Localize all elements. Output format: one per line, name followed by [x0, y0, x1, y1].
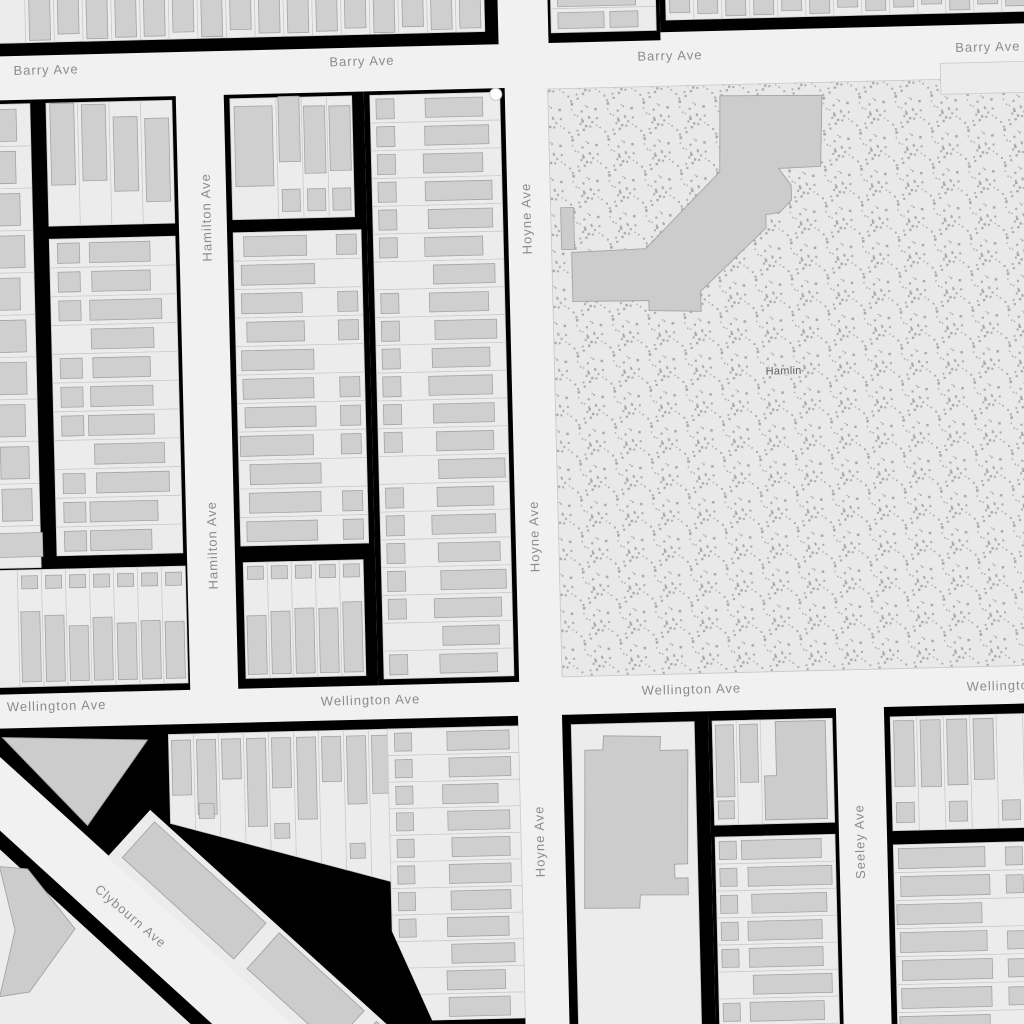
building — [86, 0, 108, 39]
building — [243, 235, 306, 257]
building — [93, 617, 114, 680]
building — [1009, 987, 1024, 1005]
building — [60, 358, 82, 379]
building — [396, 813, 413, 831]
building — [384, 432, 402, 452]
building — [221, 739, 241, 779]
map-dot — [490, 88, 502, 100]
street-label: Wellington Ave — [321, 691, 421, 708]
building — [894, 720, 916, 786]
building — [241, 292, 302, 313]
building — [240, 435, 313, 457]
building — [338, 319, 358, 339]
building — [88, 414, 154, 436]
building — [425, 97, 483, 117]
building — [451, 890, 511, 910]
building — [379, 210, 397, 230]
building — [448, 810, 510, 831]
building — [946, 719, 968, 785]
building — [90, 529, 152, 550]
building — [399, 919, 416, 937]
parcel — [0, 570, 20, 690]
building — [750, 1001, 825, 1022]
building — [973, 718, 994, 779]
building — [721, 922, 738, 940]
building — [558, 12, 604, 29]
building — [437, 486, 494, 506]
building — [64, 531, 86, 552]
building — [61, 387, 83, 408]
building — [28, 0, 50, 40]
building — [377, 126, 395, 146]
building — [897, 903, 982, 925]
parcel — [0, 0, 26, 43]
building — [229, 0, 251, 30]
building — [333, 188, 352, 210]
building — [50, 103, 76, 185]
building — [241, 349, 314, 371]
building — [295, 608, 316, 673]
building — [893, 0, 914, 7]
building — [395, 759, 412, 777]
building — [401, 0, 423, 27]
building — [247, 615, 267, 674]
rotated-map-layer: Barry AveBarry AveBarry AveBarry AveHami… — [0, 0, 1024, 1024]
building — [315, 0, 337, 31]
building — [93, 356, 151, 377]
building — [748, 920, 823, 941]
building — [441, 569, 507, 590]
building — [172, 0, 194, 32]
building — [1007, 931, 1024, 949]
building — [781, 0, 802, 11]
building — [452, 943, 516, 964]
building — [977, 0, 998, 4]
building — [920, 720, 942, 787]
building — [319, 608, 340, 673]
building — [921, 0, 942, 4]
building — [383, 377, 401, 397]
building — [741, 839, 821, 860]
building — [720, 868, 737, 886]
building — [342, 490, 362, 510]
building — [896, 802, 914, 822]
building — [438, 458, 505, 479]
street-label: Barry Ave — [329, 53, 394, 70]
building — [837, 0, 858, 7]
street-label: Wellington Ave — [966, 677, 1024, 694]
building — [697, 0, 718, 14]
building — [720, 895, 737, 913]
street-label: Hoyne Ave — [531, 805, 548, 877]
building — [447, 730, 510, 751]
building — [449, 996, 511, 1016]
building — [249, 491, 321, 513]
building — [250, 463, 321, 485]
parcel — [940, 59, 1024, 94]
building — [447, 970, 506, 990]
building — [64, 502, 86, 523]
building — [200, 0, 222, 37]
building — [89, 241, 150, 262]
building — [336, 234, 356, 254]
building — [435, 319, 497, 340]
building — [900, 931, 987, 953]
building — [373, 0, 395, 33]
building — [433, 403, 494, 423]
building — [432, 347, 490, 367]
building — [143, 0, 165, 36]
building — [58, 272, 80, 293]
building — [271, 566, 287, 579]
building — [429, 375, 493, 396]
building — [296, 737, 317, 819]
building — [739, 724, 758, 782]
building — [0, 278, 21, 311]
building — [381, 293, 399, 313]
building — [949, 0, 970, 10]
building — [0, 193, 21, 226]
building — [423, 153, 483, 173]
building — [247, 321, 305, 342]
building — [669, 0, 690, 13]
building — [199, 803, 214, 818]
building — [949, 801, 967, 821]
building — [81, 104, 107, 181]
building — [247, 520, 318, 542]
street-label: Hamilton Ave — [204, 501, 221, 590]
building — [440, 653, 498, 673]
building — [114, 0, 136, 37]
building — [752, 892, 827, 913]
building — [329, 106, 352, 171]
building — [1008, 959, 1024, 977]
building — [723, 1003, 740, 1021]
building — [425, 125, 489, 146]
building — [303, 106, 326, 174]
building — [338, 291, 358, 311]
building — [141, 620, 161, 679]
building — [718, 801, 734, 819]
building — [350, 843, 365, 858]
street-label: Barry Ave — [955, 38, 1020, 55]
map-viewport[interactable]: Barry AveBarry AveBarry AveBarry AveHami… — [0, 0, 1024, 1024]
building — [59, 300, 81, 321]
building — [382, 349, 400, 369]
street-label: Seeley Ave — [851, 804, 868, 879]
street-label: Hamilton Ave — [198, 173, 215, 262]
building — [442, 783, 498, 803]
building — [425, 236, 483, 256]
building — [45, 615, 66, 681]
building — [69, 625, 89, 680]
building — [340, 376, 360, 396]
map-canvas[interactable]: Barry AveBarry AveBarry AveBarry AveHami… — [0, 0, 1024, 1024]
building — [377, 154, 395, 174]
building — [94, 442, 164, 464]
building — [319, 564, 335, 577]
building — [396, 786, 413, 804]
building — [398, 892, 415, 910]
building — [2, 489, 33, 522]
building — [809, 0, 830, 14]
building — [610, 11, 638, 28]
building — [386, 516, 404, 536]
building — [753, 0, 774, 15]
building — [725, 0, 746, 16]
building — [719, 841, 736, 859]
building — [902, 986, 993, 1008]
building — [69, 574, 85, 587]
building — [45, 575, 61, 588]
building — [459, 0, 481, 28]
building — [0, 236, 25, 269]
building — [429, 292, 488, 312]
building — [385, 488, 403, 508]
building — [436, 430, 494, 450]
building — [389, 654, 407, 674]
building — [394, 733, 411, 751]
building — [287, 0, 309, 33]
building — [113, 116, 139, 191]
building — [378, 182, 396, 202]
building — [340, 405, 360, 425]
building — [171, 740, 191, 795]
building — [117, 623, 137, 680]
building — [715, 725, 735, 797]
building — [447, 916, 509, 936]
building — [117, 573, 133, 586]
building — [165, 572, 181, 585]
building — [341, 433, 361, 453]
building — [343, 519, 363, 539]
building — [0, 362, 27, 395]
building — [271, 737, 291, 787]
building — [321, 736, 341, 781]
building — [246, 738, 267, 826]
building — [141, 573, 157, 586]
building — [1002, 800, 1020, 820]
building — [91, 328, 154, 350]
building — [57, 243, 79, 264]
street-label: Wellington Ave — [641, 680, 741, 697]
park-label: Hamlin — [765, 365, 801, 378]
building — [397, 839, 414, 857]
building — [90, 500, 158, 522]
building — [901, 874, 991, 896]
building — [0, 151, 16, 184]
building — [57, 0, 79, 34]
building — [425, 180, 492, 201]
building — [343, 564, 359, 577]
building — [388, 599, 406, 619]
building — [258, 0, 280, 33]
building — [247, 566, 263, 579]
building — [748, 865, 832, 886]
building — [379, 238, 397, 258]
building — [1006, 875, 1023, 893]
building — [63, 473, 85, 494]
building — [749, 947, 823, 968]
building — [0, 109, 17, 142]
building — [21, 576, 37, 589]
building — [278, 96, 301, 162]
building — [343, 602, 364, 673]
building-large — [581, 734, 692, 910]
building — [434, 597, 502, 618]
building — [0, 404, 26, 437]
building — [433, 264, 495, 284]
building — [753, 973, 832, 994]
building — [449, 863, 511, 884]
street-label: Hoyne Ave — [526, 500, 543, 572]
building — [282, 189, 301, 211]
building — [449, 757, 511, 777]
building — [376, 99, 394, 119]
building — [1005, 847, 1022, 865]
street-label: Barry Ave — [13, 61, 78, 78]
building — [271, 611, 292, 674]
building — [430, 0, 452, 30]
building — [165, 621, 185, 678]
building — [92, 270, 151, 291]
street-label: Wellington Ave — [7, 697, 107, 714]
building — [561, 207, 575, 249]
building — [428, 208, 493, 229]
building — [398, 866, 415, 884]
building — [0, 532, 43, 558]
building — [381, 321, 399, 341]
building — [307, 188, 326, 210]
building — [722, 949, 739, 967]
building — [387, 571, 405, 591]
building — [443, 625, 500, 645]
building — [902, 958, 992, 980]
building — [93, 574, 109, 587]
building — [0, 320, 27, 353]
street-label: Barry Ave — [637, 47, 702, 64]
building — [62, 416, 84, 437]
building — [96, 471, 169, 493]
building — [387, 543, 405, 563]
building — [1005, 0, 1024, 6]
building — [898, 847, 985, 869]
building — [243, 378, 314, 400]
building — [865, 0, 886, 11]
building — [275, 823, 290, 838]
building — [241, 264, 315, 286]
building — [90, 385, 153, 407]
building — [0, 446, 29, 479]
building — [432, 514, 496, 535]
building — [234, 106, 274, 187]
building — [245, 406, 316, 428]
building — [145, 118, 171, 202]
building — [383, 404, 401, 424]
building — [346, 736, 367, 804]
building — [438, 542, 500, 563]
building — [90, 299, 162, 321]
building — [344, 0, 366, 28]
building — [295, 565, 311, 578]
building — [452, 836, 510, 856]
street-label: Hoyne Ave — [518, 183, 535, 255]
building — [21, 611, 42, 682]
